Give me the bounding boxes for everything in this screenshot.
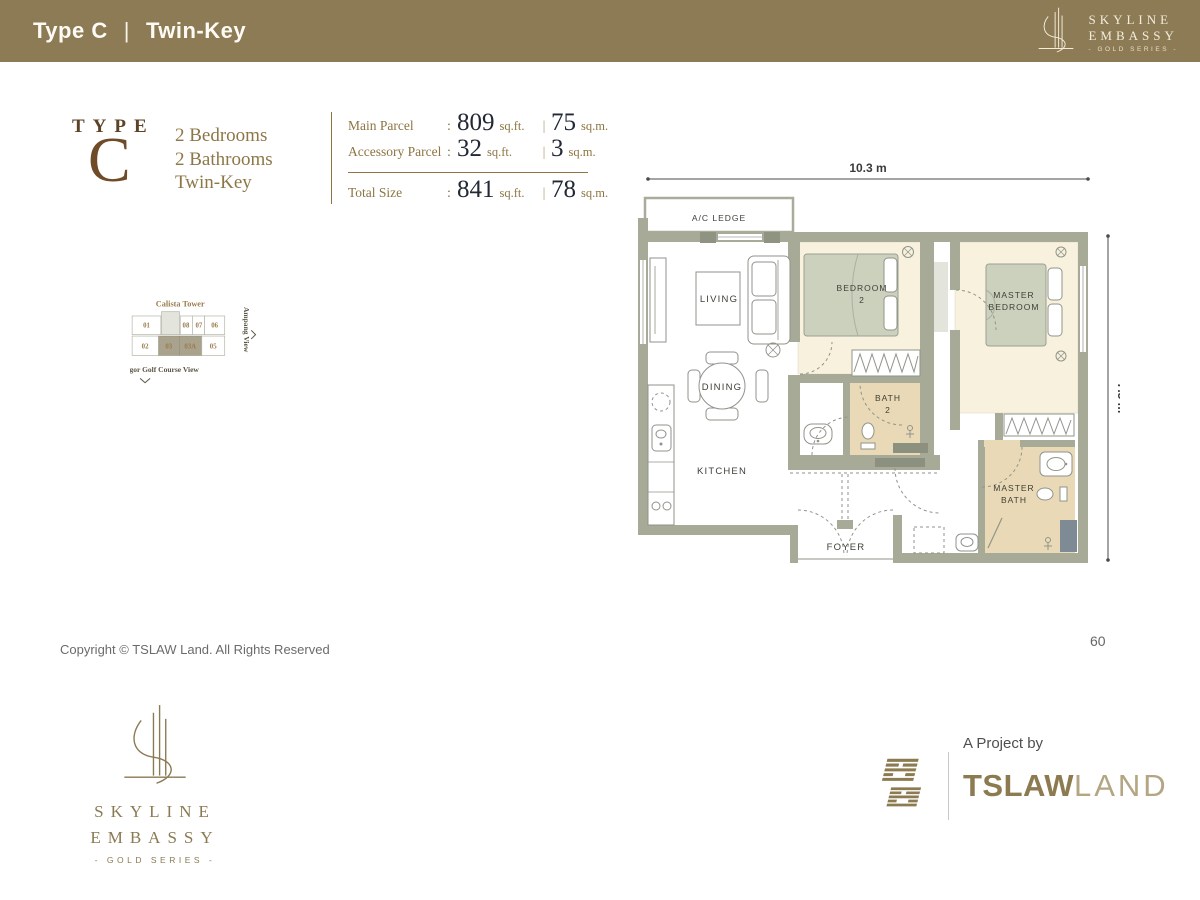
unit-cell: 08 (183, 322, 190, 329)
footer-skyline-logo: SKYLINE EMBASSY - GOLD SERIES - (60, 702, 250, 865)
skyline-embassy-logo: SKYLINE EMBASSY - GOLD SERIES - (1034, 6, 1178, 58)
calista-tower: Calista Tower 01 08 07 06 02 03 03A 05 (132, 300, 225, 356)
view-label-bottom: Royal Selangor Golf Course View (130, 365, 199, 374)
sink-master-bath (1040, 452, 1072, 476)
accessory-parcel-sqft: 32sq.ft. (457, 138, 537, 161)
master-bath-label-2: BATH (1001, 495, 1027, 505)
unit-cell: 05 (210, 343, 217, 350)
ac-ledge-label: A/C LEDGE (692, 213, 746, 223)
main-parcel-sqm: 75sq.m. (551, 112, 621, 135)
logo-line2: EMBASSY (1088, 28, 1178, 44)
logo-line1: SKYLINE (1088, 12, 1178, 28)
total-divider-line (348, 172, 588, 173)
sofa (748, 256, 790, 344)
dining-label: DINING (702, 382, 742, 393)
tv-console (650, 258, 666, 342)
foyer-label: FOYER (827, 542, 866, 553)
page-number: 60 (1090, 633, 1106, 649)
page-title-type: Type C (33, 18, 108, 44)
bed-bedroom2 (804, 254, 898, 336)
footer-logo-line3: - GOLD SERIES - (60, 855, 250, 865)
wardrobe-master (1004, 414, 1074, 436)
footer-logo-line1: SKYLINE (60, 799, 250, 825)
colon: : (447, 145, 457, 161)
toilet-bath2 (861, 423, 875, 449)
skyline-tower-icon (113, 702, 197, 794)
type-letter: C (88, 128, 131, 192)
total-size-sqm: 78sq.m. (551, 179, 621, 202)
title-divider: | (124, 18, 130, 44)
tslaw-emblem-icon (866, 752, 934, 820)
value-divider: | (537, 145, 551, 161)
bedroom2-label-2: 2 (859, 295, 865, 305)
page-title-key: Twin-Key (146, 18, 246, 44)
chevron-down-icon (140, 378, 150, 382)
bath2-label: BATH (875, 393, 901, 403)
project-by-label: A Project by (963, 735, 1043, 752)
unit-cell: 01 (143, 322, 150, 329)
logo-line3: - GOLD SERIES - (1088, 46, 1178, 53)
unit-cell: 02 (142, 343, 149, 350)
summary-bedrooms: 2 Bedrooms (175, 124, 273, 148)
bath2-label-2: 2 (885, 405, 891, 415)
tslaw-bold: TSLAW (963, 768, 1074, 803)
parcel-row-total: Total Size : 841sq.ft. | 78sq.m. (348, 179, 608, 205)
calista-tower-label: Calista Tower (156, 300, 205, 309)
master-bath-label: MASTER (993, 483, 1034, 493)
ac-ledge: A/C LEDGE (645, 198, 793, 232)
accessory-parcel-label: Accessory Parcel (348, 144, 447, 160)
tslaw-land-logo: TSLAWLAND (866, 752, 1169, 820)
living-label: LIVING (700, 294, 738, 305)
unit-cell-highlighted: 03A (184, 343, 196, 350)
total-size-label: Total Size (348, 185, 447, 201)
master-bedroom-label: MASTER (993, 290, 1034, 300)
svg-text:7.5 m: 7.5 m (1115, 383, 1120, 414)
basin-entry (956, 534, 978, 551)
view-label-right: Ampang View (242, 307, 251, 353)
colon: : (447, 186, 457, 202)
unit-cell: 06 (211, 322, 218, 329)
chevron-right-icon (251, 330, 255, 339)
header-bar: Type C | Twin-Key SKYLINE EMBASSY - GOLD… (0, 0, 1200, 62)
brochure-page: Type C | Twin-Key SKYLINE EMBASSY - GOLD… (0, 0, 1200, 900)
wardrobe-bedroom2 (852, 350, 920, 376)
basin-hall (804, 424, 832, 444)
floor-plan: 10.3 m 7.5 m A/C LEDGE (620, 160, 1120, 610)
site-key-plan: Titiwangsa View Kuala Lumpur City View A… (130, 230, 460, 610)
summary-bathrooms: 2 Bathrooms (175, 148, 273, 172)
svg-text:10.3 m: 10.3 m (849, 161, 886, 175)
value-divider: | (537, 186, 551, 202)
footer-logo-line2: EMBASSY (60, 825, 250, 851)
skyline-tower-icon (1034, 6, 1078, 58)
bedroom2-label: BEDROOM (837, 283, 888, 293)
master-bedroom-label-2: BEDROOM (989, 302, 1040, 312)
dimension-height: 7.5 m (1106, 234, 1120, 562)
dimension-width: 10.3 m (646, 161, 1090, 181)
section-divider (331, 112, 332, 204)
unit-cell: 07 (195, 322, 202, 329)
copyright-text: Copyright © TSLAW Land. All Rights Reser… (60, 642, 330, 657)
parcel-table: Main Parcel : 809sq.ft. | 75sq.m. Access… (348, 112, 608, 205)
tslaw-light: LAND (1074, 768, 1169, 803)
main-parcel-label: Main Parcel (348, 118, 447, 134)
value-divider: | (537, 119, 551, 135)
kitchen-counter (648, 385, 674, 525)
logo-divider (948, 752, 949, 820)
page-title: Type C | Twin-Key (33, 0, 246, 62)
unit-cell-highlighted: 03 (165, 343, 172, 350)
logo-wordmark: SKYLINE EMBASSY - GOLD SERIES - (1088, 12, 1178, 53)
total-size-sqft: 841sq.ft. (457, 179, 537, 202)
main-parcel-sqft: 809sq.ft. (457, 112, 537, 135)
summary-twinkey: Twin-Key (175, 171, 273, 195)
unit-summary: 2 Bedrooms 2 Bathrooms Twin-Key (175, 124, 273, 195)
colon: : (447, 119, 457, 135)
accessory-parcel-sqm: 3sq.m. (551, 138, 621, 161)
kitchen-label: KITCHEN (697, 466, 747, 477)
tslaw-wordmark: TSLAWLAND (963, 768, 1169, 804)
parcel-row-accessory: Accessory Parcel : 32sq.ft. | 3sq.m. (348, 138, 608, 164)
